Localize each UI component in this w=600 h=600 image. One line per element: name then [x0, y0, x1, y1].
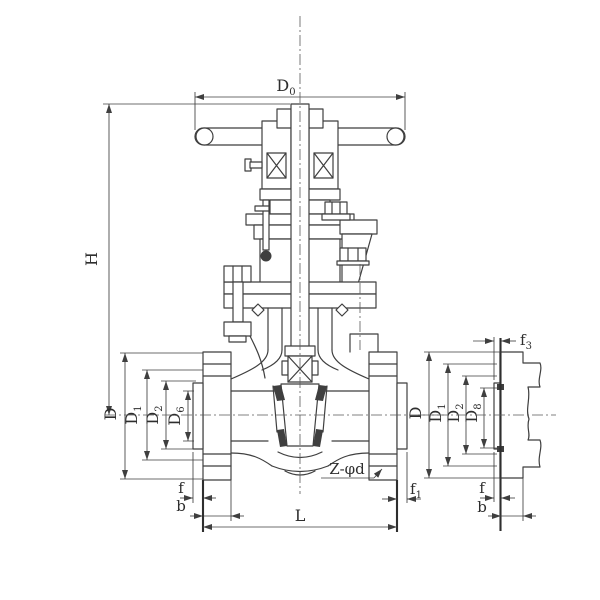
- stem-lock-nut: [277, 109, 291, 128]
- bonnet-stud: [233, 282, 243, 322]
- dim-label-detail-d: D: [406, 407, 425, 420]
- dim-label-detail-b: b: [477, 498, 487, 516]
- gate-valve-technical-drawing: D0 H D D1 D2 D6 f b L Z-φd f1: [0, 0, 600, 600]
- left-raised-face: [193, 383, 203, 449]
- bolt-hole-label: Z-φd: [329, 460, 365, 478]
- dim-label-d: D: [101, 408, 120, 421]
- yoke-hex-nut: [325, 202, 347, 214]
- dim-label-l: L: [295, 506, 306, 525]
- drawing-sheet: D0 H D D1 D2 D6 f b L Z-φd f1: [0, 0, 600, 600]
- yoke-hex-nut: [340, 248, 366, 261]
- eyebolt-pivot: [261, 251, 272, 262]
- handwheel-left-knob: [196, 128, 213, 145]
- dim-label-b: b: [176, 497, 186, 515]
- handwheel-right-knob: [387, 128, 404, 145]
- bonnet-stud-nut: [224, 322, 251, 336]
- bonnet-stud-nut: [224, 266, 251, 282]
- yoke-arm-plate: [340, 220, 377, 234]
- stem-lock-nut: [309, 109, 323, 128]
- dim-label-h: H: [82, 252, 101, 266]
